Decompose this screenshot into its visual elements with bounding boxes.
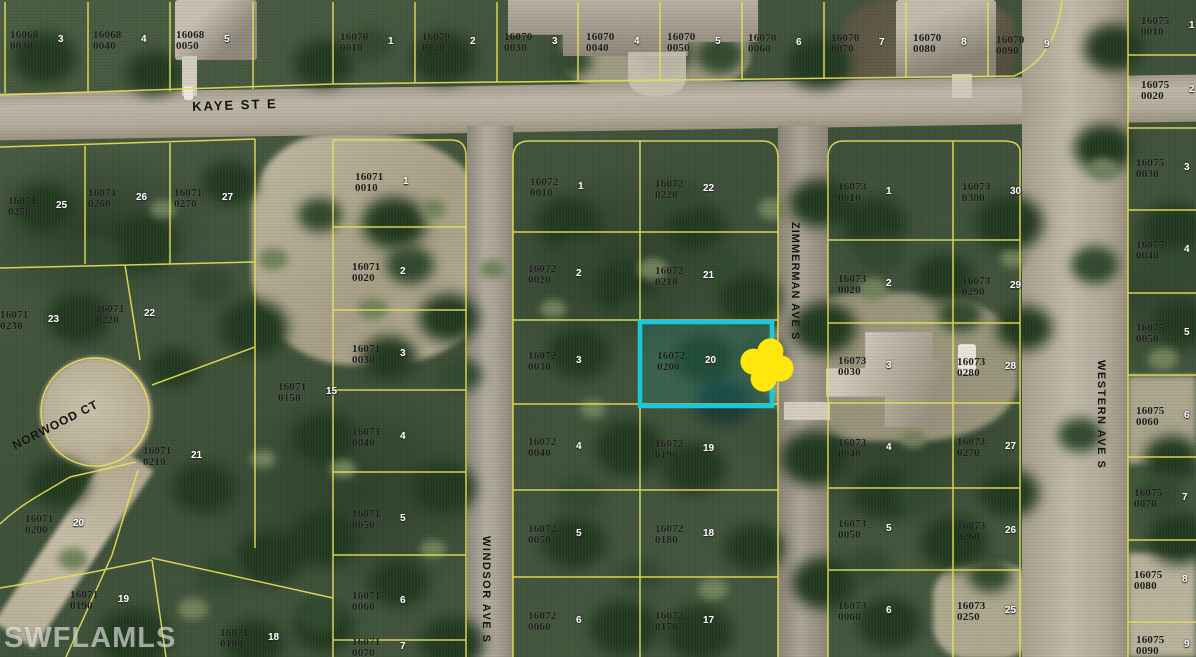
lot-number-chip: 4 [576, 441, 582, 452]
parcel-label-16071-0070: 1607100707 [352, 637, 381, 657]
parcel-apn: 16072 [530, 177, 559, 188]
parcel-apn: 16072 [528, 351, 557, 362]
parcel-apn: 16073 [838, 274, 867, 285]
parcel-suffix: 0030 [528, 362, 557, 373]
lot-number-chip: 22 [703, 183, 714, 194]
lot-number-chip: 18 [268, 632, 279, 643]
parcel-apn: 16073 [957, 437, 986, 448]
lot-number-chip: 1 [578, 181, 584, 192]
parcel-suffix: 0230 [0, 321, 29, 332]
parcel-apn: 16072 [657, 351, 686, 362]
parcel-apn: 16071 [25, 514, 54, 525]
parcel-suffix: 0190 [655, 450, 684, 461]
lot-number-chip: 1 [388, 36, 394, 47]
parcel-suffix: 0190 [70, 601, 99, 612]
parcel-apn: 16071 [278, 382, 307, 393]
parcel-apn: 16071 [352, 591, 381, 602]
mls-watermark: SWFLAMLS [4, 622, 176, 655]
map-canvas[interactable]: 1606800303160680040416068005051607000101… [0, 0, 1196, 657]
parcel-suffix: 0220 [96, 315, 125, 326]
brush-highlight [0, 0, 26, 18]
parcel-apn: 16072 [655, 524, 684, 535]
parcel-suffix: 0010 [340, 43, 369, 54]
parcel-label-16072-0170: 16072017017 [655, 611, 684, 632]
parcel-suffix: 0040 [1136, 251, 1165, 262]
parcel-suffix: 0050 [352, 520, 381, 531]
parcel-apn: 16068 [93, 30, 122, 41]
parcel-label-16072-0200[interactable]: 16072020020 [657, 351, 686, 372]
parcel-suffix: 0040 [838, 449, 867, 460]
lot-number-chip: 7 [1182, 492, 1188, 503]
parcel-apn: 16073 [962, 276, 991, 287]
parcel-label-16075-0050: 1607500505 [1136, 323, 1165, 344]
road-western-ave [1022, 0, 1128, 657]
parcel-suffix: 0050 [1136, 334, 1165, 345]
parcel-apn: 16072 [528, 524, 557, 535]
parcel-label-16071-0190: 16071019019 [70, 590, 99, 611]
sand-patch [1128, 376, 1196, 464]
parcel-label-16072-0210: 16072021021 [655, 266, 684, 287]
parcel-suffix: 0270 [174, 199, 203, 210]
road-kaye-st [0, 74, 1196, 140]
lot-number-chip: 2 [576, 268, 582, 279]
driveway [952, 74, 972, 98]
parcel-label-16073-0050: 1607300505 [838, 519, 867, 540]
lot-number-chip: 20 [705, 355, 716, 366]
lot-number-chip: 3 [58, 34, 64, 45]
lot-number-chip: 4 [1184, 244, 1190, 255]
lot-number-chip: 4 [400, 431, 406, 442]
parcel-label-16071-0220: 16071022022 [96, 304, 125, 325]
parcel-apn: 16072 [528, 611, 557, 622]
parcel-apn: 16075 [1141, 16, 1170, 27]
parcel-lines-16072-block [513, 141, 778, 657]
lot-number-chip: 27 [222, 192, 233, 203]
parcel-suffix: 0010 [838, 193, 867, 204]
parcel-apn: 16072 [528, 264, 557, 275]
parcel-label-16073-0040: 1607300404 [838, 438, 867, 459]
lot-number-chip: 21 [703, 270, 714, 281]
house-roof [175, 0, 257, 60]
parcel-suffix: 0050 [838, 530, 867, 541]
parcel-apn: 16073 [838, 182, 867, 193]
parcel-suffix: 0060 [528, 622, 557, 633]
lot-number-chip: 5 [1184, 327, 1190, 338]
lot-number-chip: 23 [48, 314, 59, 325]
parcel-apn: 16071 [143, 446, 172, 457]
lot-number-chip: 6 [796, 37, 802, 48]
parcel-suffix: 0070 [1134, 499, 1163, 510]
parcel-suffix: 0050 [528, 535, 557, 546]
parcel-label-16071-0200: 16071020020 [25, 514, 54, 535]
parcel-apn: 16073 [957, 521, 986, 532]
parcel-suffix: 0290 [962, 287, 991, 298]
parcel-suffix: 0180 [220, 639, 249, 650]
parcel-suffix: 0200 [657, 362, 686, 373]
lot-number-chip: 19 [703, 443, 714, 454]
parcel-label-16073-0300: 16073030030 [962, 182, 991, 203]
parcel-apn: 16071 [88, 188, 117, 199]
parcel-suffix: 0060 [352, 602, 381, 613]
lot-number-chip: 19 [118, 594, 129, 605]
lot-number-chip: 3 [552, 36, 558, 47]
road-zimmerman-ave [778, 126, 828, 657]
parcel-label-16073-0270: 16073027027 [957, 437, 986, 458]
parcel-label-16071-0150: 16071015015 [278, 382, 307, 403]
parcel-label-16068-0040: 1606800404 [93, 30, 122, 51]
highlighted-parcel-outline[interactable] [640, 322, 772, 406]
lot-number-chip: 3 [1184, 162, 1190, 173]
parcel-suffix: 0030 [504, 43, 533, 54]
parcel-suffix: 0020 [422, 43, 451, 54]
lot-number-chip: 5 [576, 528, 582, 539]
parcel-label-16073-0020: 1607300202 [838, 274, 867, 295]
lot-number-chip: 6 [576, 615, 582, 626]
lot-number-chip: 25 [56, 200, 67, 211]
parcel-label-16072-0060: 1607200606 [528, 611, 557, 632]
parcel-label-16071-0040: 1607100404 [352, 427, 381, 448]
lot-number-chip: 5 [400, 513, 406, 524]
lot-number-chip: 6 [400, 595, 406, 606]
parcel-suffix: 0210 [655, 277, 684, 288]
parcel-label-16072-0010: 1607200101 [530, 177, 559, 198]
parcel-apn: 16071 [220, 628, 249, 639]
parcel-label-16072-0030: 1607200303 [528, 351, 557, 372]
road-norwood-ct-bulb [40, 357, 152, 469]
lot-number-chip: 3 [576, 355, 582, 366]
parcel-apn: 16072 [655, 611, 684, 622]
road-norwood-ct [0, 444, 154, 649]
lot-number-chip: 1 [1189, 20, 1195, 31]
lot-number-chip: 4 [141, 34, 147, 45]
parcel-suffix: 0070 [352, 648, 381, 657]
parcel-label-16075-0070: 1607500707 [1134, 488, 1163, 509]
parcel-suffix: 0300 [962, 193, 991, 204]
parcel-label-16072-0180: 16072018018 [655, 524, 684, 545]
parcel-label-16073-0260: 16073026026 [957, 521, 986, 542]
parcel-label-16071-0180: 16071018018 [220, 628, 249, 649]
parcel-apn: 16075 [1136, 240, 1165, 251]
parcel-label-16072-0020: 1607200202 [528, 264, 557, 285]
parcel-label-16075-0030: 1607500303 [1136, 158, 1165, 179]
parcel-suffix: 0170 [655, 622, 684, 633]
parcel-suffix: 0040 [528, 448, 557, 459]
parcel-apn: 16070 [340, 32, 369, 43]
sand-patch [933, 563, 1035, 657]
parcel-apn: 16075 [1136, 323, 1165, 334]
pool-deck [958, 344, 976, 374]
lot-number-chip: 22 [144, 308, 155, 319]
lot-number-chip: 30 [1010, 186, 1021, 197]
parcel-apn: 16071 [8, 196, 37, 207]
lot-number-chip: 27 [1005, 441, 1016, 452]
lot-number-chip: 15 [326, 386, 337, 397]
parcel-label-16071-0250: 16071025025 [8, 196, 37, 217]
parcel-apn: 16071 [96, 304, 125, 315]
parcel-label-16070-0020: 1607000202 [422, 32, 451, 53]
parcel-suffix: 0060 [838, 612, 867, 623]
parcel-suffix: 0020 [528, 275, 557, 286]
parcel-suffix: 0030 [10, 41, 39, 52]
parcel-apn: 16073 [838, 519, 867, 530]
lot-number-chip: 2 [470, 36, 476, 47]
parcel-apn: 16070 [422, 32, 451, 43]
lot-number-chip: 5 [886, 523, 892, 534]
parcel-apn: 16071 [352, 509, 381, 520]
parcel-apn: 16071 [0, 310, 29, 321]
parcel-label-16072-0040: 1607200404 [528, 437, 557, 458]
road-windsor-ave [467, 126, 513, 657]
lot-number-chip: 29 [1010, 280, 1021, 291]
parcel-label-16071-0210: 16071021021 [143, 446, 172, 467]
lot-number-chip: 2 [886, 278, 892, 289]
sand-patch [1128, 553, 1196, 657]
parcel-apn: 16071 [174, 188, 203, 199]
driveway [784, 402, 830, 420]
lot-number-chip: 26 [136, 192, 147, 203]
parcel-apn: 16072 [528, 437, 557, 448]
parcel-label-16071-0230: 16071023023 [0, 310, 29, 331]
parcel-suffix: 0270 [957, 448, 986, 459]
parcel-suffix: 0220 [655, 190, 684, 201]
parcel-suffix: 0040 [352, 438, 381, 449]
parcel-label-16072-0190: 16072019019 [655, 439, 684, 460]
parcel-label-16070-0030: 1607000303 [504, 32, 533, 53]
parcel-apn: 16075 [1134, 488, 1163, 499]
parcel-apn: 16073 [962, 182, 991, 193]
parcel-label-16073-0060: 1607300606 [838, 601, 867, 622]
parcel-apn: 16072 [655, 439, 684, 450]
parcel-label-16070-0010: 1607000101 [340, 32, 369, 53]
parcel-suffix: 0250 [8, 207, 37, 218]
vehicle [184, 86, 193, 100]
parcel-apn: 16071 [352, 637, 381, 648]
parcel-label-16075-0010: 1607500101 [1141, 16, 1170, 37]
parcel-apn: 16071 [352, 427, 381, 438]
parcel-suffix: 0060 [748, 44, 777, 55]
lot-number-chip: 18 [703, 528, 714, 539]
parcel-suffix: 0260 [88, 199, 117, 210]
house-roof [896, 0, 996, 78]
parcel-label-16071-0270: 16071027027 [174, 188, 203, 209]
parcel-apn: 16075 [1136, 158, 1165, 169]
lot-number-chip: 7 [400, 641, 406, 652]
parcel-suffix: 0030 [1136, 169, 1165, 180]
parcel-suffix: 0260 [957, 532, 986, 543]
parcel-apn: 16072 [655, 266, 684, 277]
parcel-suffix: 0180 [655, 535, 684, 546]
driveway [628, 52, 686, 96]
parcel-label-16071-0050: 1607100505 [352, 509, 381, 530]
parcel-label-16073-0290: 16073029029 [962, 276, 991, 297]
parcel-suffix: 0010 [530, 188, 559, 199]
parcel-label-16073-0010: 1607300101 [838, 182, 867, 203]
parcel-label-16071-0260: 16071026026 [88, 188, 117, 209]
lot-number-chip: 1 [886, 186, 892, 197]
lot-number-chip: 6 [886, 605, 892, 616]
lot-number-chip: 21 [191, 450, 202, 461]
parcel-label-16075-0040: 1607500404 [1136, 240, 1165, 261]
parcel-suffix: 0150 [278, 393, 307, 404]
lot-number-chip: 17 [703, 615, 714, 626]
parcel-suffix: 0010 [1141, 27, 1170, 38]
parcel-apn: 16071 [70, 590, 99, 601]
parcel-label-16071-0060: 1607100606 [352, 591, 381, 612]
lot-number-chip: 26 [1005, 525, 1016, 536]
parcel-label-16072-0220: 16072022022 [655, 179, 684, 200]
parcel-suffix: 0200 [25, 525, 54, 536]
parcel-label-16072-0050: 1607200505 [528, 524, 557, 545]
parcel-apn: 16073 [838, 601, 867, 612]
lot-number-chip: 4 [886, 442, 892, 453]
parcel-apn: 16072 [655, 179, 684, 190]
parcel-suffix: 0040 [93, 41, 122, 52]
